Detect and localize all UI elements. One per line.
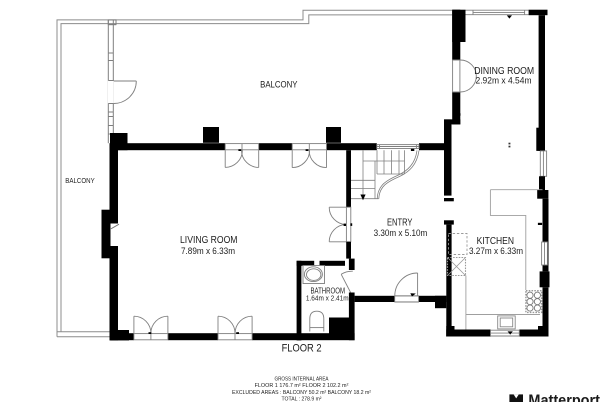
svg-text:LIVING ROOM: LIVING ROOM bbox=[180, 234, 238, 246]
svg-text:KITCHEN: KITCHEN bbox=[477, 235, 514, 247]
svg-text:7.89m x 6.33m: 7.89m x 6.33m bbox=[181, 246, 235, 256]
svg-text:1.64m x 2.41m: 1.64m x 2.41m bbox=[306, 294, 349, 303]
svg-text:TOTAL : 278.9 m²: TOTAL : 278.9 m² bbox=[282, 397, 322, 402]
svg-text:Matterport: Matterport bbox=[528, 392, 600, 402]
svg-text:2.92m x 4.54m: 2.92m x 4.54m bbox=[476, 75, 532, 85]
svg-text:3.27m x 6.33m: 3.27m x 6.33m bbox=[469, 246, 523, 256]
svg-text:FLOOR 2: FLOOR 2 bbox=[282, 343, 322, 355]
svg-text:BALCONY: BALCONY bbox=[65, 176, 95, 185]
svg-text:3.30m x 5.10m: 3.30m x 5.10m bbox=[374, 228, 428, 238]
svg-text:FLOOR 1 176.7 m² FLOOR 2 102: FLOOR 1 176.7 m² FLOOR 2 102.2 m² bbox=[255, 383, 349, 389]
svg-text:BALCONY: BALCONY bbox=[260, 79, 297, 89]
svg-text:EXCLUDED AREAS : BALCONY 50.: EXCLUDED AREAS : BALCONY 50.2 m² BALCONY… bbox=[232, 390, 371, 396]
svg-text:ENTRY: ENTRY bbox=[387, 217, 412, 229]
svg-text:GROSS INTERNAL AREA: GROSS INTERNAL AREA bbox=[275, 376, 329, 382]
